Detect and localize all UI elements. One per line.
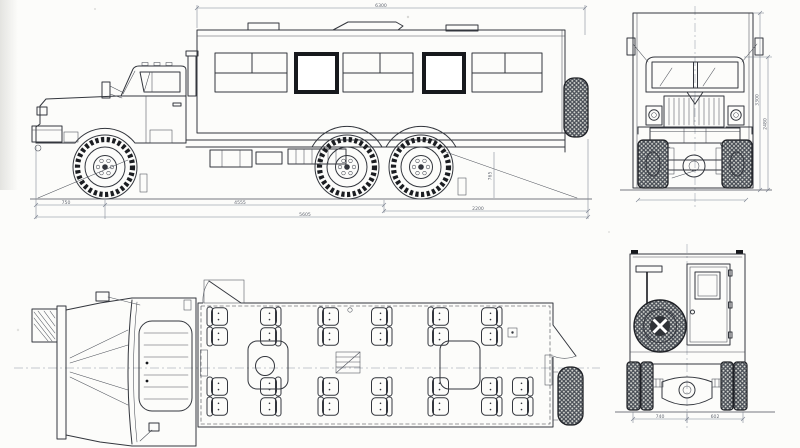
- rear-view: 740 602: [615, 244, 775, 428]
- rear-tyre-right-inner: [721, 362, 733, 410]
- rear-spare-wheel: [634, 300, 686, 352]
- van-body-side: [197, 22, 565, 133]
- departure-angle-line: [446, 152, 577, 198]
- dim-rear-section: 2200: [472, 206, 484, 212]
- front-heater: [201, 350, 208, 376]
- front-fender-arc: [75, 128, 135, 143]
- dim-front-height: 3300: [755, 94, 761, 106]
- plan-spare-tyre: [553, 367, 583, 425]
- floor-step: [336, 352, 360, 373]
- table-1: [248, 341, 288, 389]
- side-window-1: [215, 53, 287, 92]
- plan-entrance-door: [203, 280, 244, 306]
- door-handle: [173, 103, 181, 106]
- mirror-left-front: [627, 38, 648, 62]
- dim-overall-length: 5605: [299, 212, 311, 218]
- plan-view: [14, 280, 600, 446]
- approach-angle-line: [38, 160, 128, 198]
- bogie-wheel-1: [315, 135, 379, 199]
- dim-rear-track-right: 602: [711, 414, 720, 420]
- plan-air-stack: [184, 300, 191, 310]
- headlight-side: [37, 107, 47, 115]
- rear-cabinet: [508, 328, 517, 337]
- table-2: [440, 341, 480, 389]
- fuel-tank: [210, 150, 252, 167]
- plan-bumper: [57, 306, 66, 439]
- dim-front-cab-height: 2480: [763, 118, 769, 130]
- headlight-left: [649, 110, 659, 120]
- wiper-left: [660, 68, 672, 86]
- spare-tyre-side: [564, 78, 588, 137]
- bogie-wheel-2: [389, 135, 453, 199]
- cab-step: [150, 130, 172, 143]
- side-window-3: [343, 53, 413, 92]
- dim-body-length-label: 6300: [375, 3, 387, 9]
- plan-cab: [96, 292, 196, 446]
- cab-side: [32, 51, 198, 151]
- rear-dimensions: 740 602: [631, 412, 745, 423]
- blueprint-canvas: 6300: [0, 0, 800, 448]
- rear-door-handle: [691, 310, 695, 314]
- hood-edge-bottom: [66, 435, 132, 446]
- roof-marker-left: [631, 250, 638, 254]
- side-view: 6300: [30, 3, 592, 219]
- seat-benches-upper: [207, 307, 502, 346]
- scan-artifacts: [0, 0, 610, 331]
- bogie-fender-1: [312, 126, 382, 147]
- dim-rear-track-left: 740: [656, 414, 665, 420]
- front-tyre-left: [638, 140, 668, 188]
- seat-benches-lower: [207, 377, 533, 416]
- plan-winch: [32, 309, 57, 342]
- cab-side-window: [140, 72, 180, 92]
- plan-rear-door: [551, 325, 576, 358]
- battery-box: [256, 152, 282, 164]
- winch-side: [64, 132, 78, 142]
- dim-rear-frame-height: 765: [488, 172, 494, 181]
- plan-front-end: [32, 298, 132, 446]
- bogie-fender-2: [386, 126, 456, 147]
- front-tyre-right: [722, 140, 752, 188]
- air-intake-stack: [186, 51, 198, 96]
- hood-edge-top: [66, 298, 132, 310]
- cab-roof-panel: [139, 321, 192, 411]
- plan-body: [198, 280, 576, 427]
- roof-hatch-1: [248, 23, 279, 30]
- dim-wheelbase: 4555: [234, 200, 246, 206]
- headlight-right: [731, 110, 741, 120]
- rear-door: [687, 264, 732, 345]
- roof-vent-mark: [348, 308, 352, 312]
- rear-door-window: [695, 272, 720, 299]
- rear-tyre-right-outer: [734, 362, 747, 410]
- wiper-right: [703, 68, 715, 86]
- side-window-2-emergency: [296, 54, 337, 92]
- front-wheel: [73, 135, 137, 199]
- rear-heater: [545, 355, 552, 385]
- roof-vent: [333, 22, 403, 30]
- plan-mirror-bottom: [140, 423, 159, 441]
- roof-marker-right: [736, 250, 743, 254]
- mud-flap-rear: [458, 178, 466, 195]
- dim-front-overhang: 750: [62, 200, 71, 206]
- rear-tyre-left-outer: [627, 362, 640, 410]
- plan-windshield: [128, 300, 132, 444]
- front-view: 3300 2480: [620, 6, 772, 207]
- rear-tyre-left-inner: [641, 362, 653, 410]
- blueprint-svg: 6300: [0, 0, 800, 448]
- side-window-4-emergency: [424, 54, 464, 92]
- radiator-grille: [664, 96, 724, 127]
- side-window-5: [472, 53, 542, 92]
- mud-flap-front: [140, 174, 147, 192]
